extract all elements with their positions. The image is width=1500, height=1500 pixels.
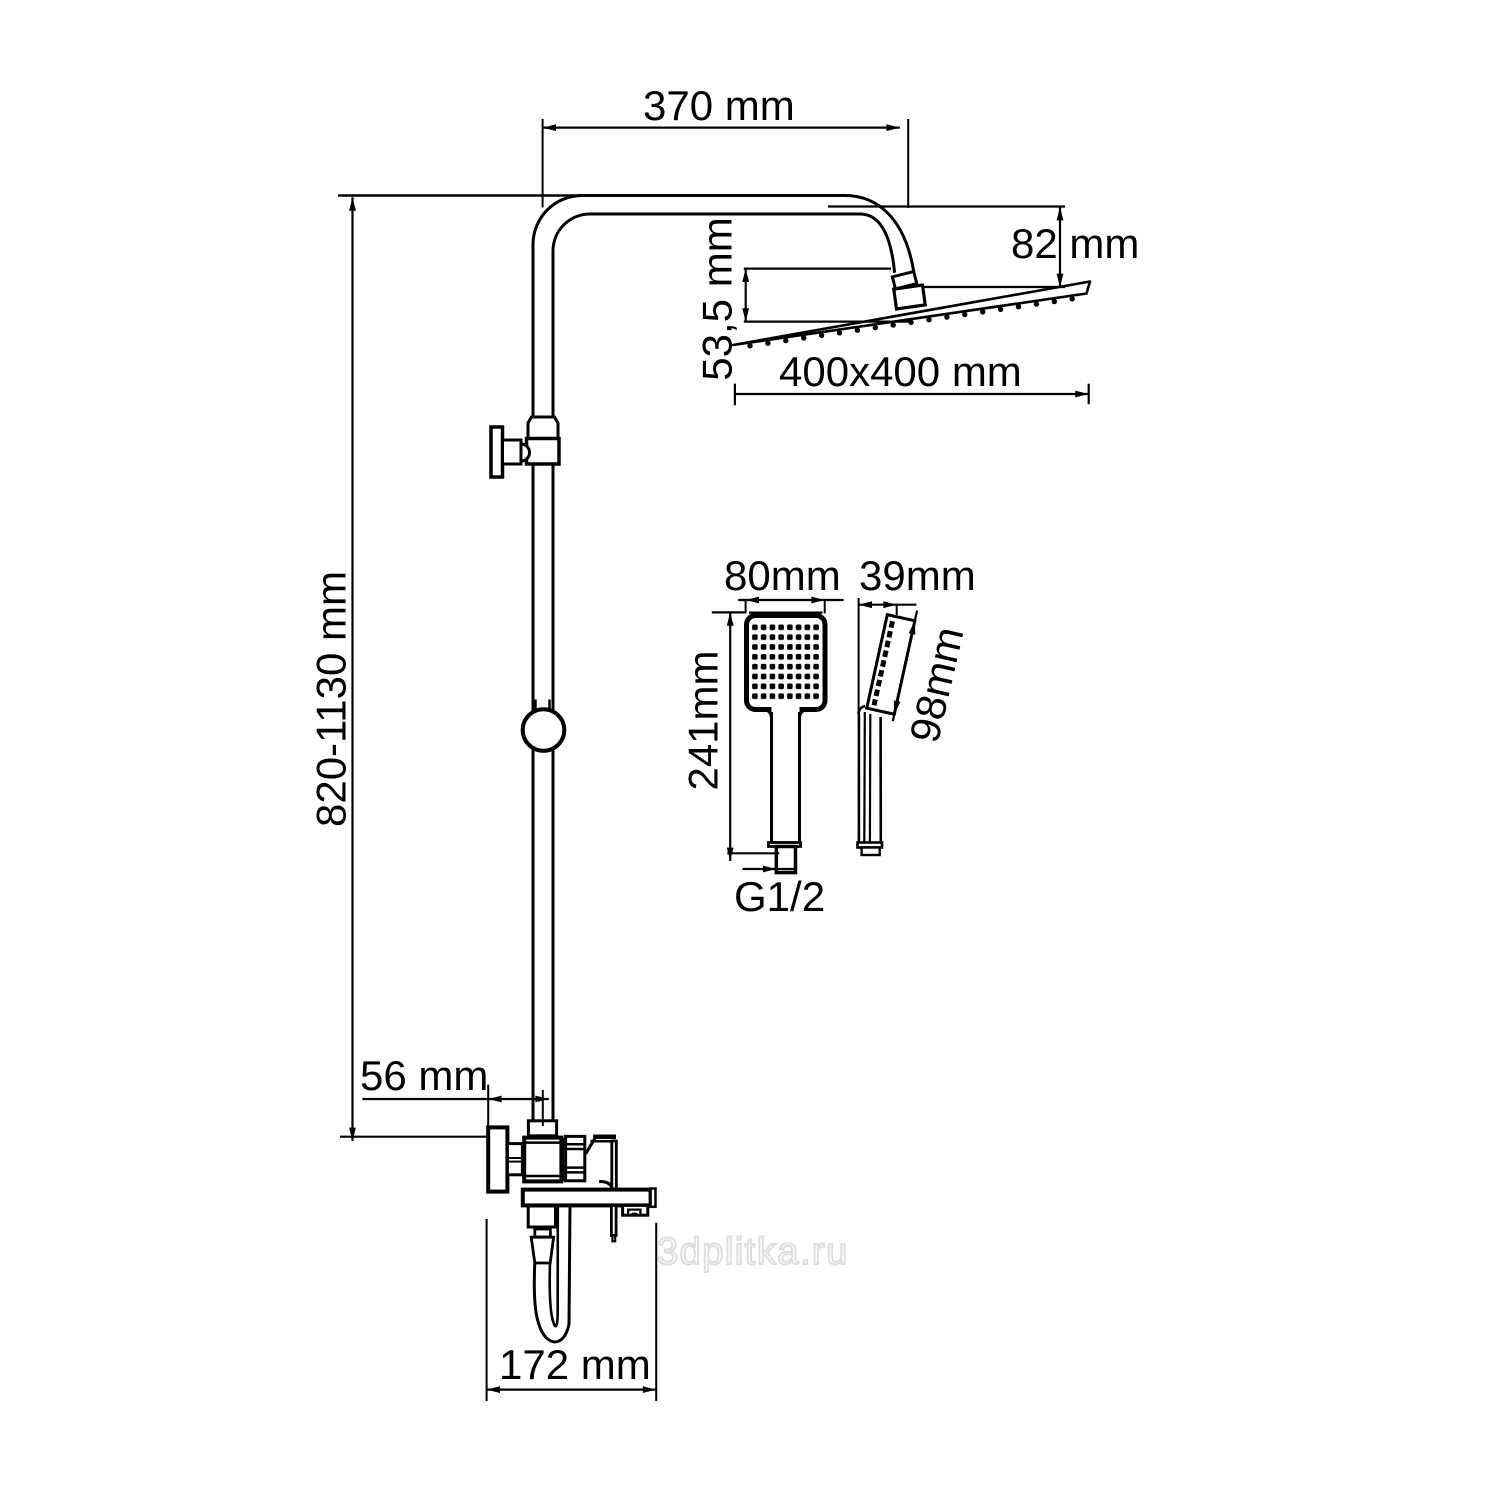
svg-text:400x400 mm: 400x400 mm xyxy=(779,348,1022,395)
svg-text:3dplitka.ru: 3dplitka.ru xyxy=(657,1231,849,1273)
svg-text:56 mm: 56 mm xyxy=(360,1052,488,1099)
svg-text:241mm: 241mm xyxy=(680,650,727,790)
svg-text:80mm: 80mm xyxy=(724,552,841,599)
svg-text:820-1130 mm: 820-1130 mm xyxy=(308,571,355,827)
svg-text:53,5 mm: 53,5 mm xyxy=(694,217,741,380)
svg-text:39mm: 39mm xyxy=(859,552,976,599)
svg-text:172 mm: 172 mm xyxy=(499,1341,651,1388)
svg-text:G1/2: G1/2 xyxy=(734,873,825,920)
svg-text:82 mm: 82 mm xyxy=(1011,220,1139,267)
svg-text:370 mm: 370 mm xyxy=(643,82,795,129)
